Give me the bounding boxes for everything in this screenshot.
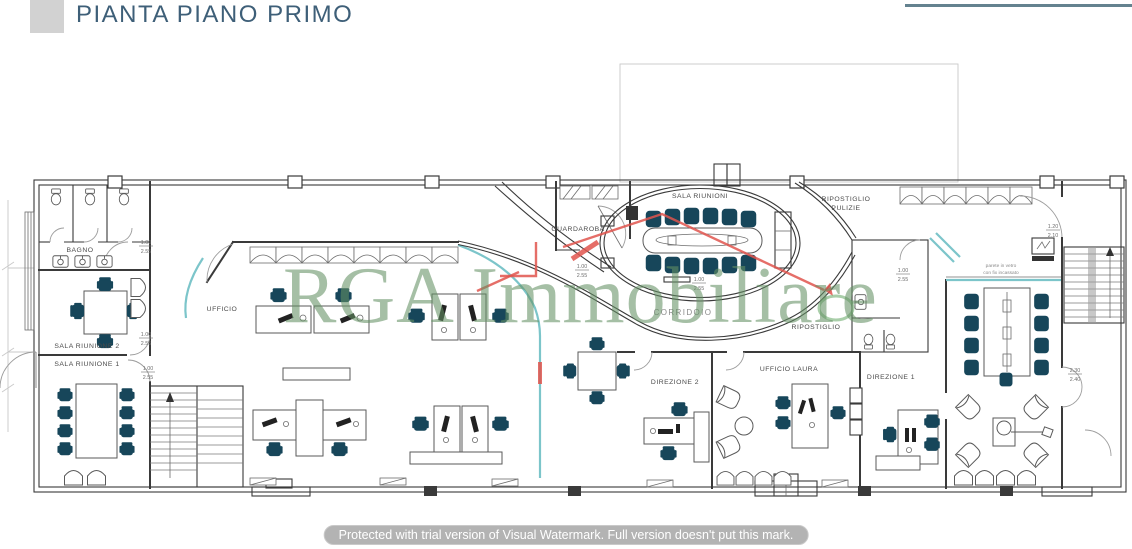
room-label-guardaroba: GUARDAROBA [551,226,604,233]
svg-text:2.55: 2.55 [141,249,152,255]
dimension-chain [2,200,34,432]
room-ripostiglio-pulizie: RIPOSTIGLIO PULIZIE [795,182,1032,240]
room-label-ripostiglio-pulizie-1: RIPOSTIGLIO [822,196,871,203]
meeting-table-right [964,288,1049,386]
trial-watermark-bar: Protected with trial version of Visual W… [324,525,809,545]
electrical-panel [1032,238,1054,261]
svg-text:2.55: 2.55 [898,277,909,283]
glass-wall-note-2: con fix incassato [983,270,1019,276]
room-ufficio: UFFICIO [185,242,540,478]
room-guardaroba: GUARDAROBA [551,182,638,250]
desk-cluster-3 [253,400,366,456]
room-ufficio-laura: UFFICIO LAURA [712,352,862,488]
svg-text:2.55: 2.55 [694,286,705,292]
cabinet-row [250,247,458,263]
stairs-right [1062,182,1124,488]
svg-text:1.20: 1.20 [1048,224,1059,230]
desk-cluster-4 [410,406,509,464]
svg-text:2.55: 2.55 [143,375,154,381]
desk-cluster-1 [256,288,369,333]
room-direzione-2: DIREZIONE 2 [618,352,712,488]
break-table [563,337,630,404]
outer-walls [0,176,1126,496]
floor-plan: BAGNO SALA RIUNIONE 2 [0,0,1132,549]
room-label-sala-riunione-1: SALA RIUNIONE 1 [54,361,119,368]
room-label-corridoio: CORRIDOIO [654,308,713,317]
stairs-left [150,386,243,487]
svg-text:2.55: 2.55 [141,341,152,347]
svg-text:1.00: 1.00 [898,268,909,274]
room-sala-riunione-1: SALA RIUNIONE 1 [54,360,150,488]
room-label-ufficio-laura: UFFICIO LAURA [760,366,818,373]
svg-text:2.55: 2.55 [577,273,588,279]
room-label-bagno: BAGNO [66,247,93,254]
room-label-direzione-1: DIREZIONE 1 [867,374,915,381]
svg-text:1.00: 1.00 [577,264,588,270]
svg-text:2.40: 2.40 [1070,377,1081,383]
svg-text:1.00: 1.00 [143,366,154,372]
room-label-ripostiglio-pulizie-2: PULIZIE [831,205,860,212]
room-label-sala-riunione-2: SALA RIUNIONE 2 [54,343,119,350]
room-label-direzione-2: DIREZIONE 2 [651,379,699,386]
screenshot-stage: PIANTA PIANO PRIMO [0,0,1132,549]
lounge-area [956,395,1054,468]
room-label-ufficio: UFFICIO [207,306,238,313]
svg-text:2.10: 2.10 [1048,233,1059,239]
glass-wall-note-1: parete in vetro [986,263,1017,269]
svg-text:1.00: 1.00 [141,240,152,246]
room-label-sala-riunioni: SALA RIUNIONI [672,193,728,200]
desk-cluster-2 [408,294,508,340]
svg-text:1.00: 1.00 [694,277,705,283]
room-sala-riunione-2: SALA RIUNIONE 2 [39,277,150,355]
terrace-outline [620,64,958,186]
cabinet-row-right [900,187,1032,204]
room-label-ripostiglio: RIPOSTIGLIO [792,324,841,331]
svg-text:1.00: 1.00 [141,332,152,338]
room-direzione-1: parete in vetro con fix incassato DIREZI… [867,263,1062,488]
svg-text:2.30: 2.30 [1070,368,1081,374]
conference-table [643,208,762,274]
